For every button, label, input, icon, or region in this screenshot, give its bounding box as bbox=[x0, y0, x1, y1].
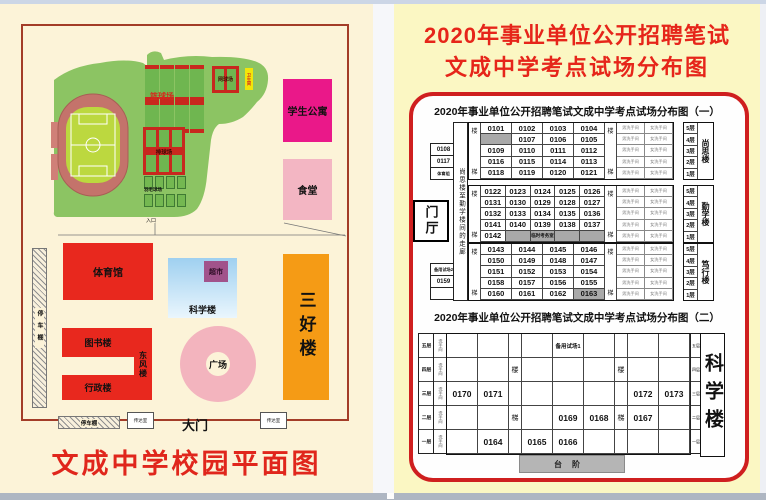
volleyball-label: 排球场 bbox=[143, 148, 185, 156]
chart1-title: 2020年事业单位公开招聘笔试文成中学考点试场分布图（一） bbox=[412, 104, 742, 119]
exam-room-cell: 0123 bbox=[506, 186, 531, 197]
exam-room-cell bbox=[615, 334, 628, 358]
page-gap bbox=[373, 4, 394, 493]
female-restroom-cell: 女洗手间 bbox=[645, 255, 673, 266]
stair-bottom-label: 梯 bbox=[607, 167, 613, 176]
exam-room-cell: 0128 bbox=[555, 197, 580, 208]
stairwell-column: 楼梯 bbox=[469, 244, 481, 300]
floor-label-column: 5层4层3层2层1层 bbox=[684, 186, 697, 242]
campus-roads bbox=[58, 223, 346, 236]
floor-label: 3层 bbox=[684, 267, 697, 278]
main-gate-label: 大门 bbox=[182, 415, 208, 434]
building-table-shangsi: 楼梯01010102010301040107010601050109011001… bbox=[468, 122, 674, 180]
male-restroom-cell: 男洗手间 bbox=[617, 168, 645, 179]
exam-room-cell bbox=[628, 334, 659, 358]
building-table-duxing: 楼梯01430144014501460150014901480147015101… bbox=[468, 243, 674, 301]
exam-room-cell: 0136 bbox=[580, 208, 605, 219]
exam-room-cell bbox=[522, 406, 553, 430]
female-restroom-cell: 女洗手间 bbox=[645, 157, 673, 168]
building-name-cell: 笃行楼 bbox=[697, 244, 713, 300]
lobby-label: 门厅 bbox=[422, 205, 441, 237]
exam-room-cell: 0161 bbox=[512, 289, 543, 300]
page-right-edge bbox=[760, 4, 766, 493]
page-header-line1: 2020年事业单位公开招聘笔试 bbox=[394, 18, 760, 50]
male-restroom-cell: 男洗手间 bbox=[617, 186, 645, 197]
stair-bottom-label: 梯 bbox=[471, 288, 477, 297]
exam-room-cell: 0138 bbox=[555, 220, 580, 231]
stand bbox=[51, 122, 58, 148]
stairwell-column: 楼梯 bbox=[469, 186, 481, 242]
exam-room-cell: 0129 bbox=[531, 197, 556, 208]
exam-room-cell: 0118 bbox=[481, 168, 512, 179]
exam-room-cell bbox=[555, 231, 580, 242]
exam-room-cell: 0157 bbox=[512, 278, 543, 289]
female-restroom-cell: 女洗手间 bbox=[645, 168, 673, 179]
lobby-box: 门厅 bbox=[413, 200, 449, 242]
science-building-column: 科学楼 bbox=[700, 333, 725, 457]
exam-room-cell bbox=[481, 134, 512, 145]
chart2-title: 2020年事业单位公开招聘笔试文成中学考点试场分布图（二） bbox=[412, 310, 742, 325]
female-restroom-cell: 女洗手间 bbox=[645, 289, 673, 300]
exam-room-cell: 0105 bbox=[574, 134, 605, 145]
exam-room-cell: 0113 bbox=[574, 157, 605, 168]
volleyball-cell bbox=[172, 155, 182, 172]
restroom-kiosk: 卫生间 bbox=[245, 68, 253, 90]
floor-label: 五层 bbox=[419, 334, 434, 358]
parking-left-label: 停车棚 bbox=[35, 308, 44, 348]
floor-label: 一层 bbox=[419, 430, 434, 453]
exam-room-cell: 0140 bbox=[506, 220, 531, 231]
science-building-label: 科学楼 bbox=[699, 353, 726, 437]
exam-room-cell: 0131 bbox=[481, 197, 506, 208]
female-restroom-cell: 女洗手间 bbox=[645, 244, 673, 255]
parking-bottom-label: 停车棚 bbox=[80, 419, 99, 427]
room-grid: 0143014401450146015001490148014701510152… bbox=[481, 244, 605, 300]
exam-room-cell: 0107 bbox=[512, 134, 543, 145]
exam-room-cell: 0106 bbox=[543, 134, 574, 145]
exam-room-cell: 0160 bbox=[481, 289, 512, 300]
floor-label: 5层 bbox=[684, 123, 697, 134]
exam-room-cell: 0132 bbox=[481, 208, 506, 219]
male-restroom-cell: 男洗手间 bbox=[617, 123, 645, 134]
stair-top-label: 楼 bbox=[607, 247, 613, 256]
exam-room-cell: 0134 bbox=[531, 208, 556, 219]
female-restroom-cell: 女洗手间 bbox=[645, 278, 673, 289]
floor-label: 1层 bbox=[684, 232, 697, 242]
exam-room-cell: 0149 bbox=[512, 255, 543, 266]
exam-room-cell: 0151 bbox=[481, 266, 512, 277]
exam-room-cell: 0167 bbox=[628, 406, 659, 430]
restroom-label: 洗手间 bbox=[438, 435, 444, 448]
exam-room-cell bbox=[584, 334, 615, 358]
stair-cell: 梯 bbox=[509, 406, 522, 430]
stair-bottom-label: 梯 bbox=[471, 230, 477, 239]
exam-room-cell bbox=[478, 406, 509, 430]
exam-room-cell: 0146 bbox=[574, 244, 605, 255]
gymnasium: 体育馆 bbox=[63, 243, 153, 300]
stair-cell: 楼 bbox=[509, 358, 522, 382]
stair-cell: 楼 bbox=[615, 358, 628, 382]
stairwell-column: 楼梯 bbox=[605, 123, 617, 179]
exam-room-cell: 0163 bbox=[574, 289, 605, 300]
floor-label: 5层 bbox=[684, 186, 697, 197]
exam-room-cell: 0152 bbox=[512, 266, 543, 277]
exam-room-cell bbox=[659, 430, 690, 454]
exam-room-cell bbox=[659, 334, 690, 358]
basketball-label: 篮球场 bbox=[150, 91, 174, 102]
exam-room-cell: 0162 bbox=[543, 289, 574, 300]
exam-room-cell: 0111 bbox=[543, 145, 574, 156]
supermarket: 超市 bbox=[204, 261, 228, 282]
exam-room-cell bbox=[522, 334, 553, 358]
restroom-label: 洗手间 bbox=[438, 339, 444, 352]
exam-room-cell: 0144 bbox=[512, 244, 543, 255]
science-label: 科学楼 bbox=[168, 303, 237, 316]
exam-room-cell bbox=[584, 358, 615, 382]
exam-room-cell: 0166 bbox=[553, 430, 584, 454]
kiosk-label: 卫生间 bbox=[246, 73, 252, 86]
floor-label: 1层 bbox=[684, 290, 697, 300]
parking-shed-bottom: 停车棚 bbox=[58, 416, 120, 429]
floor-block: 5层4层3层2层1层尚思楼 bbox=[683, 122, 714, 180]
volleyball-cell bbox=[159, 155, 169, 172]
floor-label-column: 5层4层3层2层1层 bbox=[684, 244, 697, 300]
exam-room-cell: 0169 bbox=[553, 406, 584, 430]
restroom-grid: 男洗手间女洗手间男洗手间女洗手间男洗手间女洗手间男洗手间女洗手间男洗手间女洗手间 bbox=[617, 123, 673, 179]
building-name: 勤学楼 bbox=[700, 202, 711, 226]
restroom-label: 洗手间 bbox=[438, 411, 444, 424]
male-restroom-cell: 男洗手间 bbox=[617, 157, 645, 168]
exam-room-cell: 0155 bbox=[574, 278, 605, 289]
exam-room-cell: 0173 bbox=[659, 382, 690, 406]
female-restroom-cell: 女洗手间 bbox=[645, 197, 673, 208]
stair-cell: 梯 bbox=[615, 406, 628, 430]
plaza-circle: 广场 bbox=[180, 326, 256, 402]
exam-room-cell: 0122 bbox=[481, 186, 506, 197]
floor-label: 4层 bbox=[684, 197, 697, 208]
volleyball-cell bbox=[146, 155, 156, 172]
basketball-court bbox=[190, 101, 204, 133]
restroom-grid: 男洗手间女洗手间男洗手间女洗手间男洗手间女洗手间男洗手间女洗手间男洗手间女洗手间 bbox=[617, 186, 673, 242]
exam-room-cell bbox=[584, 382, 615, 406]
exam-room-cell: 0150 bbox=[481, 255, 512, 266]
parking-shed-left: 停车棚 bbox=[32, 248, 47, 408]
exam-room-cell bbox=[584, 430, 615, 454]
exam-room-cell bbox=[580, 231, 605, 242]
stair-bottom-label: 梯 bbox=[471, 167, 477, 176]
exam-room-cell: 0116 bbox=[481, 157, 512, 168]
female-restroom-cell: 女洗手间 bbox=[645, 231, 673, 242]
male-restroom-cell: 男洗手间 bbox=[617, 231, 645, 242]
floor-block: 5层4层3层2层1层笃行楼 bbox=[683, 243, 714, 301]
floor-label: 三层 bbox=[419, 382, 434, 406]
exam-room-cell: 0103 bbox=[543, 123, 574, 134]
corridor-label: 尚思楼至勤学楼间的走廊 bbox=[456, 168, 466, 256]
volleyball-courts: 排球场 bbox=[143, 127, 185, 175]
exam-room-cell bbox=[628, 430, 659, 454]
campus-map-page: 篮球场 网球场 卫生间 排球场 羽毛球场 入口 学生公寓 食堂 体育馆 超市 科… bbox=[0, 4, 373, 493]
floor-label: 3层 bbox=[684, 209, 697, 220]
exam-room-cell: 0164 bbox=[478, 430, 509, 454]
exam-room-cell bbox=[509, 334, 522, 358]
exam-room-cell bbox=[447, 358, 478, 382]
exam-room-cell: 0109 bbox=[481, 145, 512, 156]
floor-label: 4层 bbox=[684, 134, 697, 145]
exam-room-cell: 0115 bbox=[512, 157, 543, 168]
corridor-strip: 尚思楼至勤学楼间的走廊 bbox=[453, 122, 468, 301]
exam-room-cell bbox=[553, 358, 584, 382]
exam-room-cell: 0153 bbox=[543, 266, 574, 277]
exam-room-cell bbox=[615, 382, 628, 406]
stairwell-column: 楼梯 bbox=[469, 123, 481, 179]
exam-room-cell: 0127 bbox=[580, 197, 605, 208]
floor-label-column: 5层4层3层2层1层 bbox=[684, 123, 697, 179]
map-title: 文成中学校园平面图 bbox=[0, 442, 373, 481]
floor-label: 4层 bbox=[684, 255, 697, 266]
exam-room-cell bbox=[615, 430, 628, 454]
exam-room-cell: 临时考务室 bbox=[531, 231, 556, 242]
science-building: 超市 科学楼 bbox=[168, 258, 237, 318]
exam-room-cell: 0154 bbox=[574, 266, 605, 277]
building-name-cell: 尚思楼 bbox=[697, 123, 713, 179]
exam-room-cell: 0170 bbox=[447, 382, 478, 406]
plaza-label: 广场 bbox=[180, 326, 256, 402]
floor-label: 2层 bbox=[684, 220, 697, 231]
exam-room-cell: 0119 bbox=[512, 168, 543, 179]
gatehouse: 传达室 bbox=[127, 412, 154, 429]
badminton-label: 羽毛球场 bbox=[144, 187, 162, 193]
stairwell-column: 楼梯 bbox=[605, 244, 617, 300]
exam-room-cell bbox=[628, 358, 659, 382]
male-restroom-cell: 男洗手间 bbox=[617, 244, 645, 255]
exam-room-cell: 0112 bbox=[574, 145, 605, 156]
exam-room-cell bbox=[553, 382, 584, 406]
exam-room-cell bbox=[509, 382, 522, 406]
female-restroom-cell: 女洗手间 bbox=[645, 145, 673, 156]
exam-room-cell bbox=[522, 358, 553, 382]
male-restroom-cell: 男洗手间 bbox=[617, 266, 645, 277]
female-restroom-cell: 女洗手间 bbox=[645, 208, 673, 219]
exam-room-cell: 0110 bbox=[512, 145, 543, 156]
exam-room-cell: 0130 bbox=[506, 197, 531, 208]
exam-room-cell: 0172 bbox=[628, 382, 659, 406]
male-restroom-cell: 男洗手间 bbox=[617, 278, 645, 289]
exam-room-cell: 0147 bbox=[574, 255, 605, 266]
exam-room-cell bbox=[478, 334, 509, 358]
exam-room-cell: 0124 bbox=[531, 186, 556, 197]
volleyball-cell bbox=[146, 130, 156, 147]
scrollbar-thumb[interactable] bbox=[387, 493, 394, 499]
exam-room-cell: 0148 bbox=[543, 255, 574, 266]
stand bbox=[51, 154, 58, 180]
floor-label: 1层 bbox=[684, 169, 697, 179]
exam-room-cell: 0137 bbox=[580, 220, 605, 231]
canteen: 食堂 bbox=[283, 159, 332, 220]
stairwell-column: 楼梯 bbox=[605, 186, 617, 242]
floor-label: 二层 bbox=[419, 406, 434, 430]
chart2-room-grid: 备用试场1楼楼0170017101720173梯01690168梯0167016… bbox=[446, 333, 691, 455]
restroom-label: 洗手间 bbox=[438, 387, 444, 400]
admin-building: 行政楼 bbox=[62, 375, 134, 400]
basketball-court bbox=[175, 65, 189, 101]
exam-room-cell bbox=[509, 430, 522, 454]
tennis-label: 网球场 bbox=[212, 76, 239, 83]
exam-room-cell: 0114 bbox=[543, 157, 574, 168]
male-restroom-cell: 男洗手间 bbox=[617, 197, 645, 208]
page-header-line2: 文成中学考点试场分布图 bbox=[394, 50, 760, 82]
sanhao-building: 三好楼 bbox=[283, 254, 329, 400]
horizontal-scrollbar[interactable] bbox=[0, 493, 766, 500]
exam-room-cell: 0171 bbox=[478, 382, 509, 406]
exam-room-cell bbox=[659, 358, 690, 382]
exam-room-cell: 0126 bbox=[580, 186, 605, 197]
exam-room-cell: 0102 bbox=[512, 123, 543, 134]
stair-bottom-label: 梯 bbox=[607, 230, 613, 239]
exam-room-cell: 0135 bbox=[555, 208, 580, 219]
floor-block: 5层4层3层2层1层勤学楼 bbox=[683, 185, 714, 243]
exam-room-cell bbox=[447, 406, 478, 430]
exam-room-cell: 0133 bbox=[506, 208, 531, 219]
basketball-court bbox=[190, 65, 204, 101]
male-restroom-cell: 男洗手间 bbox=[617, 220, 645, 231]
male-restroom-cell: 男洗手间 bbox=[617, 134, 645, 145]
room-grid: 0101010201030104010701060105010901100111… bbox=[481, 123, 605, 179]
floor-label: 2层 bbox=[684, 278, 697, 289]
female-restroom-cell: 女洗手间 bbox=[645, 134, 673, 145]
female-restroom-cell: 女洗手间 bbox=[645, 220, 673, 231]
building-name-cell: 勤学楼 bbox=[697, 186, 713, 242]
exam-room-cell: 0125 bbox=[555, 186, 580, 197]
exam-room-cell: 0121 bbox=[574, 168, 605, 179]
exam-room-cell: 0141 bbox=[481, 220, 506, 231]
exam-room-cell: 0142 bbox=[481, 231, 506, 242]
exam-chart-page: 2020年事业单位公开招聘笔试 文成中学考点试场分布图 2020年事业单位公开招… bbox=[394, 4, 760, 493]
library-building: 图书楼 bbox=[62, 328, 134, 357]
stair-top-label: 楼 bbox=[607, 126, 613, 135]
exam-room-cell: 0168 bbox=[584, 406, 615, 430]
male-restroom-cell: 男洗手间 bbox=[617, 145, 645, 156]
gatehouse: 传达室 bbox=[260, 412, 287, 429]
female-restroom-cell: 女洗手间 bbox=[645, 123, 673, 134]
female-restroom-cell: 女洗手间 bbox=[645, 186, 673, 197]
exam-room-cell bbox=[478, 358, 509, 382]
exam-room-cell: 0120 bbox=[543, 168, 574, 179]
stair-top-label: 楼 bbox=[471, 189, 477, 198]
exam-room-cell bbox=[659, 406, 690, 430]
tennis-court: 网球场 bbox=[212, 66, 239, 93]
exam-room-cell: 0145 bbox=[543, 244, 574, 255]
restroom-grid: 男洗手间女洗手间男洗手间女洗手间男洗手间女洗手间男洗手间女洗手间男洗手间女洗手间 bbox=[617, 244, 673, 300]
building-name: 尚思楼 bbox=[700, 139, 711, 163]
volleyball-cell bbox=[159, 130, 169, 147]
stair-bottom-label: 梯 bbox=[607, 288, 613, 297]
badminton-row bbox=[144, 194, 186, 207]
male-restroom-cell: 男洗手间 bbox=[617, 289, 645, 300]
entrance-label: 入口 bbox=[146, 217, 156, 224]
restroom-label: 洗手间 bbox=[438, 363, 444, 376]
stair-top-label: 楼 bbox=[471, 247, 477, 256]
dongfeng-building: 东风楼 bbox=[134, 328, 152, 400]
male-restroom-cell: 男洗手间 bbox=[617, 255, 645, 266]
floor-label: 四层 bbox=[419, 358, 434, 382]
exam-room-cell bbox=[506, 231, 531, 242]
exam-room-cell: 0156 bbox=[543, 278, 574, 289]
stair-top-label: 楼 bbox=[607, 189, 613, 198]
female-restroom-cell: 女洗手间 bbox=[645, 266, 673, 277]
building-name: 笃行楼 bbox=[700, 260, 711, 284]
exam-room-cell: 0143 bbox=[481, 244, 512, 255]
exam-room-cell: 0101 bbox=[481, 123, 512, 134]
floor-label: 2层 bbox=[684, 157, 697, 168]
exam-room-cell: 备用试场1 bbox=[553, 334, 584, 358]
exam-room-cell: 0165 bbox=[522, 430, 553, 454]
floor-label: 5层 bbox=[684, 244, 697, 255]
steps-box: 台阶 bbox=[519, 455, 625, 473]
volleyball-cell bbox=[172, 130, 182, 147]
exam-room-cell bbox=[447, 430, 478, 454]
building-table-qinxue: 楼梯01220123012401250126013101300129012801… bbox=[468, 185, 674, 243]
exam-room-cell: 0139 bbox=[531, 220, 556, 231]
exam-room-cell: 0158 bbox=[481, 278, 512, 289]
exam-room-cell: 0104 bbox=[574, 123, 605, 134]
exam-room-cell bbox=[447, 334, 478, 358]
stair-top-label: 楼 bbox=[471, 126, 477, 135]
male-restroom-cell: 男洗手间 bbox=[617, 208, 645, 219]
floor-label: 3层 bbox=[684, 146, 697, 157]
room-grid: 0122012301240125012601310130012901280127… bbox=[481, 186, 605, 242]
student-dorm: 学生公寓 bbox=[283, 79, 332, 142]
exam-room-cell bbox=[522, 382, 553, 406]
